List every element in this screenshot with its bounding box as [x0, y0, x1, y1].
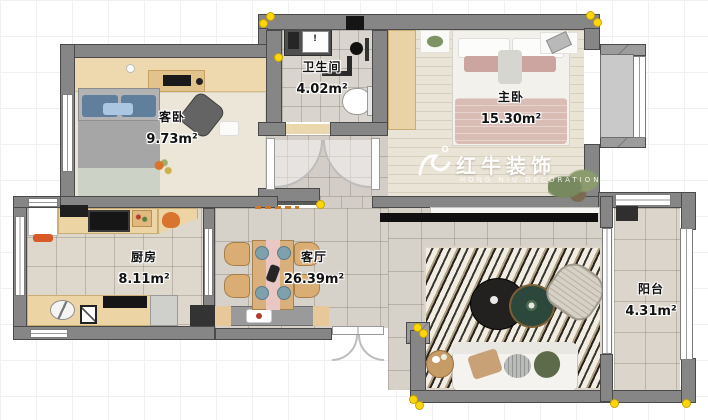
- entry-door-swing-right: [358, 335, 384, 361]
- living-left-wall: [410, 330, 426, 394]
- room-area: 26.39m²: [266, 272, 362, 287]
- bull-logo-icon: [414, 142, 454, 182]
- guest-window[interactable]: [62, 94, 73, 172]
- range-hood[interactable]: [60, 205, 88, 217]
- kitchen-cabinet-dark: [190, 305, 215, 326]
- dining-bottom-wall: [215, 328, 332, 340]
- bay-platform: [600, 54, 634, 138]
- cat-figure: [162, 212, 180, 228]
- room-label-living-room: 客厅 26.39m²: [266, 248, 362, 287]
- tv[interactable]: [380, 213, 598, 222]
- guest-door-panel[interactable]: [266, 138, 275, 190]
- balcony-right-wall-top: [681, 192, 696, 230]
- washing-machine[interactable]: [150, 295, 178, 326]
- room-name: 阳台: [612, 280, 690, 297]
- plate-decor: [256, 313, 262, 319]
- room-name: 卫生间: [282, 58, 362, 75]
- balcony-sliding-door[interactable]: [602, 228, 612, 354]
- balcony-divider-bottom: [600, 354, 613, 402]
- laptop[interactable]: [163, 75, 191, 86]
- bath-bottom-wall-right: [330, 122, 388, 136]
- kitchen-sink-round: [50, 300, 75, 320]
- room-label-master-bedroom: 主卧 15.30m²: [463, 88, 559, 127]
- selection-handle[interactable]: [266, 12, 275, 21]
- room-name: 客厅: [266, 248, 362, 265]
- room-area: 4.31m²: [612, 304, 690, 319]
- room-name: 主卧: [463, 88, 559, 105]
- selection-handle[interactable]: [610, 399, 619, 408]
- cooktop[interactable]: [103, 296, 147, 308]
- sideboard-wood-end: [215, 306, 231, 326]
- hallway-edge-line: [278, 202, 320, 205]
- balcony-cabinet[interactable]: [616, 206, 638, 221]
- balcony-top-window[interactable]: [615, 194, 671, 206]
- bay-window[interactable]: [633, 56, 646, 138]
- dining-chair[interactable]: [224, 274, 250, 298]
- kitchen-bottom-window[interactable]: [30, 329, 68, 338]
- selection-handle[interactable]: [419, 329, 428, 338]
- selection-handle[interactable]: [259, 19, 268, 28]
- room-label-bathroom: 卫生间 4.02m²: [282, 58, 362, 97]
- bath-left-wall: [266, 30, 282, 136]
- plant-large[interactable]: [548, 164, 602, 206]
- master-wardrobe[interactable]: [388, 30, 416, 130]
- kitchen-sink: [88, 210, 130, 232]
- cutting-board: [132, 210, 152, 227]
- master-right-wall-top: [584, 28, 600, 50]
- room-area: 4.02m²: [282, 82, 362, 97]
- step-window[interactable]: [28, 198, 58, 207]
- washer-box[interactable]: [346, 16, 364, 30]
- side-table-cup: [441, 354, 447, 360]
- top-wall: [258, 14, 600, 30]
- shower-head[interactable]: [350, 42, 363, 55]
- bath-right-wall: [372, 30, 388, 136]
- guest-bed-cushion: [103, 103, 133, 115]
- brand-name: 红牛装饰: [456, 150, 556, 179]
- bedside-mat: [219, 121, 239, 136]
- ceiling-light: [126, 64, 135, 73]
- room-area: 8.11m²: [102, 272, 186, 287]
- orange-pot: [33, 234, 53, 242]
- room-label-kitchen: 厨房 8.11m²: [102, 248, 186, 287]
- selection-handle[interactable]: [682, 399, 691, 408]
- small-appliance: [80, 305, 97, 324]
- desk-speaker: [196, 78, 203, 85]
- bathroom-threshold: [286, 124, 330, 134]
- sink-alert-mark: !: [313, 34, 317, 44]
- sofa-cushion-gray: [504, 354, 531, 378]
- coffee-table-cup: [490, 296, 498, 304]
- threshold-marks: [255, 206, 299, 209]
- floorplan-canvas: !: [0, 0, 708, 420]
- vanity-fixture: [288, 32, 299, 49]
- room-label-guest-bedroom: 客卧 9.73m²: [130, 108, 214, 147]
- master-knit-throw: [498, 50, 522, 84]
- shower-bar: [365, 38, 369, 61]
- guest-top-wall: [60, 44, 268, 58]
- dining-chair[interactable]: [224, 242, 250, 266]
- place-setting: [255, 286, 269, 300]
- fridge[interactable]: [28, 206, 58, 236]
- selection-handle[interactable]: [415, 401, 424, 410]
- place-setting: [277, 286, 291, 300]
- entry-door-panels[interactable]: [332, 326, 384, 335]
- balcony-right-wall-bottom: [681, 358, 696, 403]
- room-area: 15.30m²: [463, 112, 559, 127]
- selection-handle[interactable]: [593, 18, 602, 27]
- selection-handle[interactable]: [274, 53, 283, 62]
- bath-bottom-wall-left: [258, 122, 286, 136]
- guest-bottom-wall: [60, 196, 278, 208]
- plant-small[interactable]: [423, 33, 447, 50]
- room-label-balcony: 阳台 4.31m²: [612, 280, 690, 319]
- sideboard-wood-end: [313, 306, 329, 326]
- kitchen-window[interactable]: [15, 216, 25, 296]
- room-area: 9.73m²: [130, 132, 214, 147]
- brand-subtitle: HONG NIU DECORATION: [460, 176, 601, 184]
- entry-door-swing-left: [332, 335, 358, 361]
- selection-handle[interactable]: [316, 200, 325, 209]
- living-bottom-wall: [410, 390, 696, 403]
- guest-bed-throw: [78, 168, 160, 197]
- kitchen-sliding-door[interactable]: [204, 228, 213, 296]
- sofa-back: [452, 342, 578, 354]
- side-table[interactable]: [426, 350, 454, 378]
- room-name: 客卧: [130, 108, 214, 125]
- room-name: 厨房: [102, 248, 186, 265]
- table-flowers: [526, 300, 537, 311]
- master-door-panel[interactable]: [371, 138, 380, 190]
- side-table-cup: [432, 356, 440, 363]
- flower-decor: [150, 155, 176, 181]
